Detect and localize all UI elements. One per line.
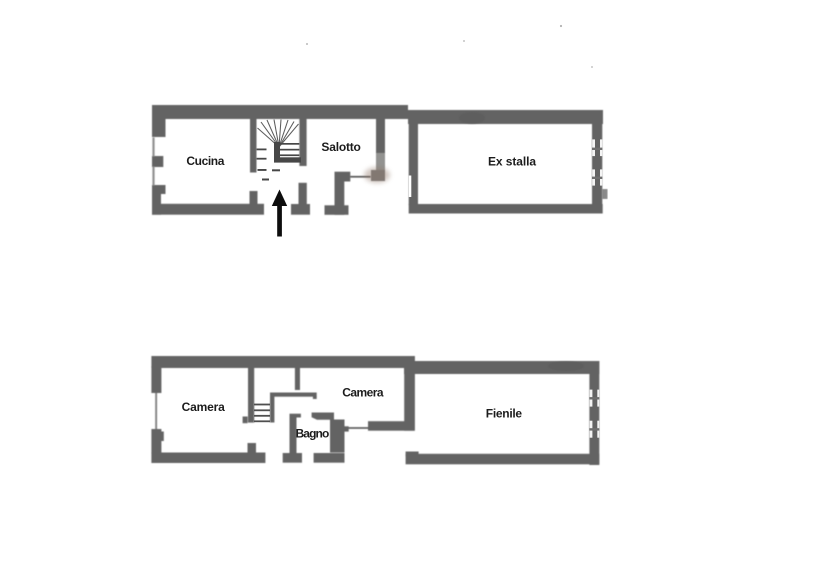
svg-text:Salotto: Salotto xyxy=(321,140,361,154)
svg-text:Camera: Camera xyxy=(342,386,384,400)
svg-text:Ex stalla: Ex stalla xyxy=(488,155,536,169)
svg-text:Camera: Camera xyxy=(182,400,226,414)
svg-text:Cucina: Cucina xyxy=(186,154,224,168)
svg-text:Fienile: Fienile xyxy=(486,406,523,420)
svg-text:Bagno: Bagno xyxy=(296,427,330,441)
